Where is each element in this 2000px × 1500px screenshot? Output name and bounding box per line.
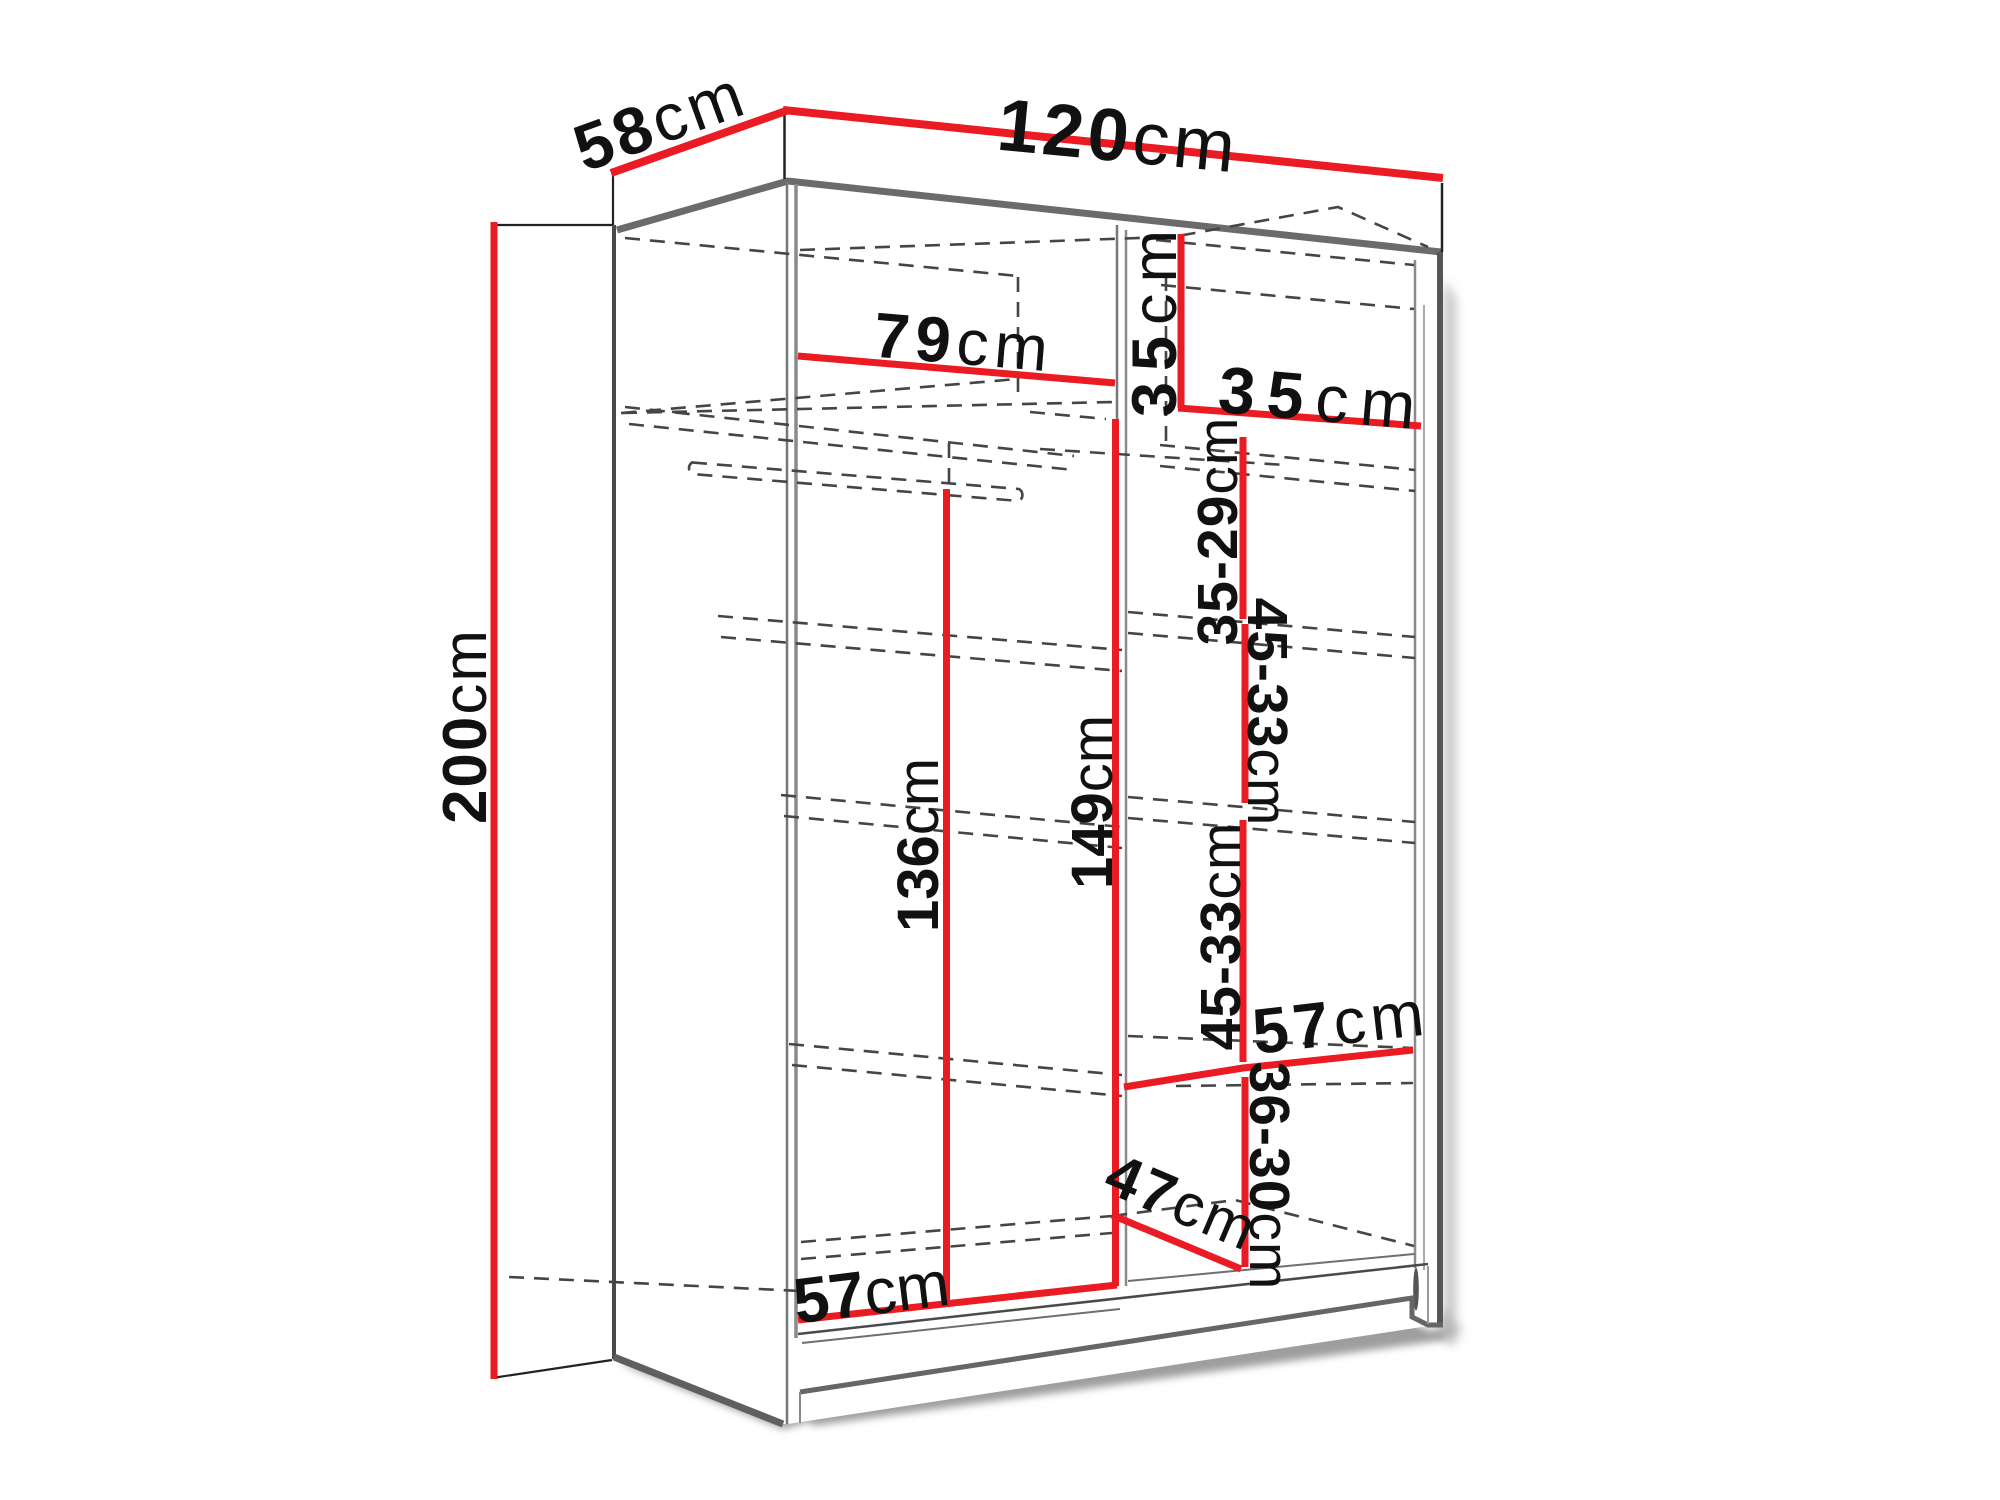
svg-text:200cm: 200cm — [431, 628, 500, 824]
svg-text:79cm: 79cm — [871, 299, 1057, 386]
svg-text:136cm: 136cm — [886, 758, 951, 932]
svg-text:35cm: 35cm — [1120, 219, 1190, 417]
svg-text:149cm: 149cm — [1060, 715, 1125, 889]
svg-text:45-33cm: 45-33cm — [1235, 598, 1299, 827]
svg-text:36-30cm: 36-30cm — [1237, 1062, 1301, 1291]
svg-text:45-33cm: 45-33cm — [1189, 822, 1253, 1051]
